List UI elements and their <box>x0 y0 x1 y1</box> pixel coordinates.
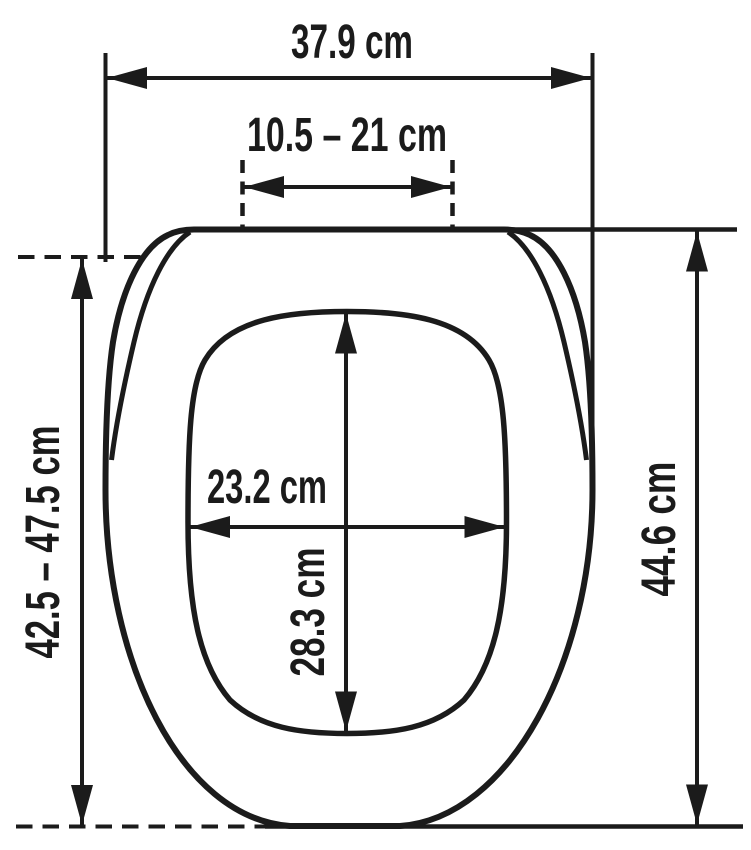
toilet-seat-dimension-diagram: 37.9 cm 10.5 – 21 cm 42.5 – 47.5 cm 23.2… <box>0 0 751 850</box>
outer-width-dimension-label: 37.9 cm <box>291 16 413 69</box>
adjustable-depth-top-arrowhead <box>71 259 93 299</box>
hinge-spacing-right-arrowhead <box>411 176 451 198</box>
outer-width-right-arrowhead <box>551 67 591 89</box>
inner-depth-dimension-label: 28.3 cm <box>282 548 335 677</box>
adjustable-depth-dimension: 42.5 – 47.5 cm <box>17 259 93 825</box>
diagram-page: 37.9 cm 10.5 – 21 cm 42.5 – 47.5 cm 23.2… <box>0 0 751 850</box>
hinge-spacing-dimension: 10.5 – 21 cm <box>243 109 453 230</box>
inner-width-dimension-label: 23.2 cm <box>207 461 327 514</box>
adjustable-depth-bottom-arrowhead <box>71 785 93 825</box>
hinge-spacing-left-arrowhead <box>244 176 284 198</box>
outer-depth-bottom-arrowhead <box>686 785 708 825</box>
outer-depth-top-arrowhead <box>686 232 708 272</box>
outer-depth-dimension: 44.6 cm <box>633 232 708 825</box>
adjustable-depth-dimension-label: 42.5 – 47.5 cm <box>17 426 70 659</box>
hinge-spacing-dimension-label: 10.5 – 21 cm <box>247 109 447 162</box>
outer-depth-dimension-label: 44.6 cm <box>633 462 686 597</box>
outer-width-left-arrowhead <box>107 67 147 89</box>
